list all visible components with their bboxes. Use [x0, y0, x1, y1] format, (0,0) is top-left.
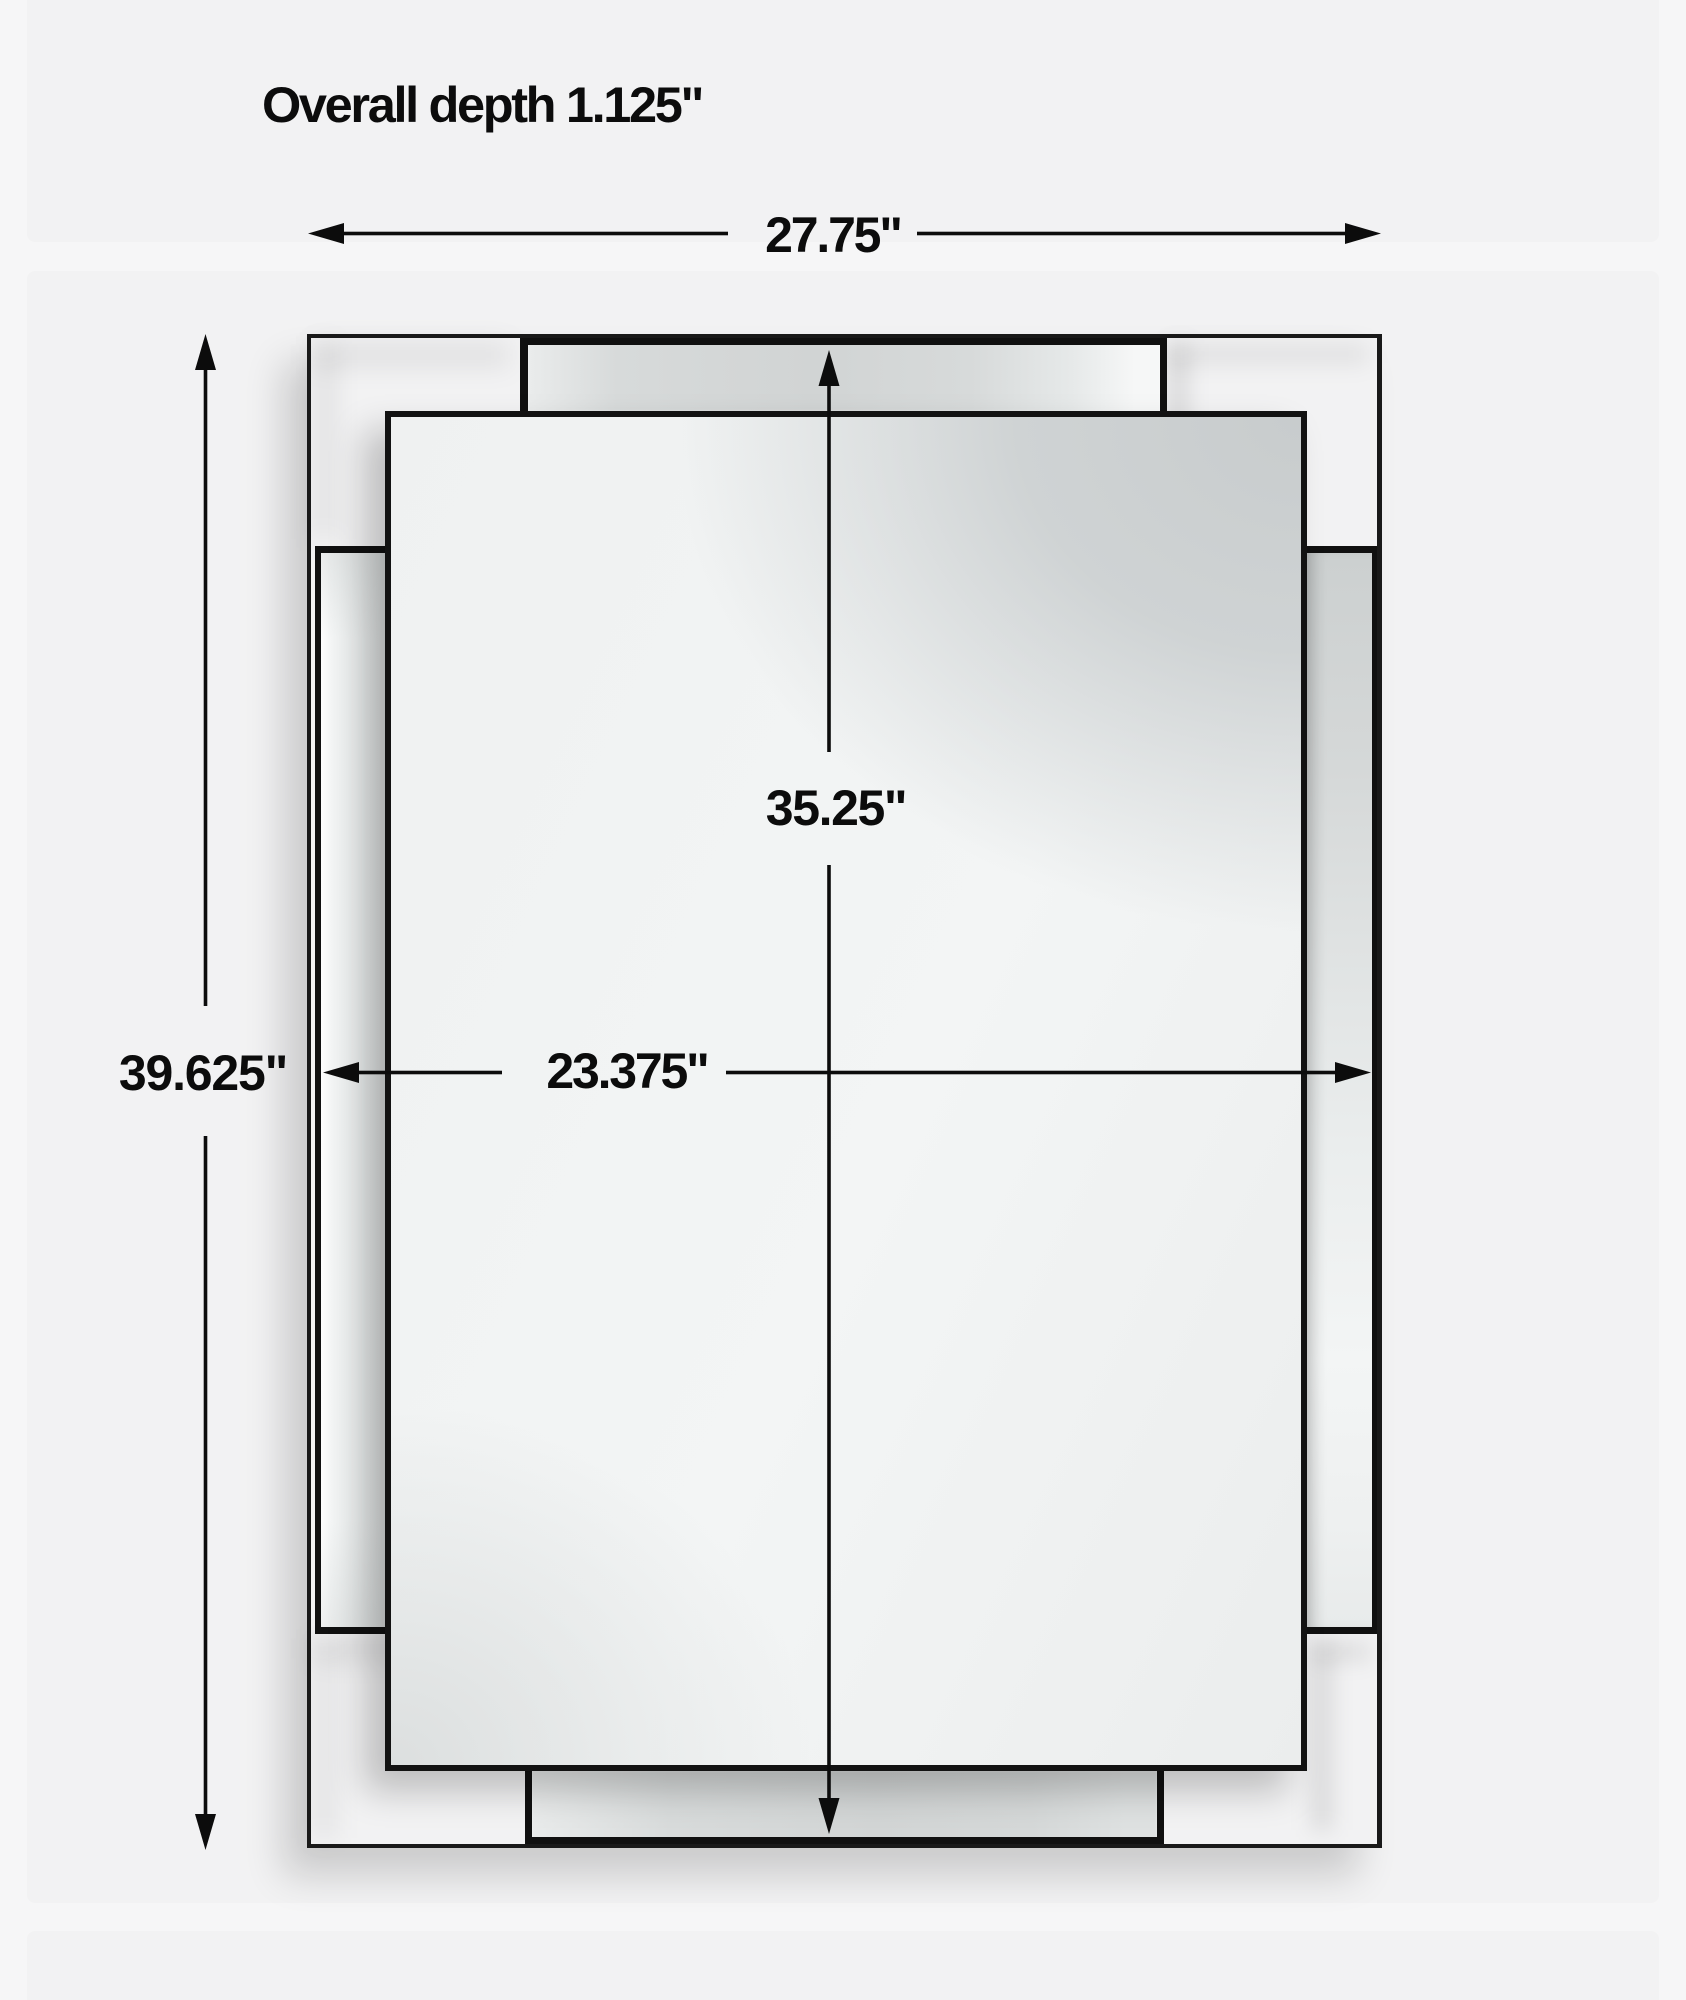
svg-text:39.625": 39.625" [119, 1045, 287, 1101]
svg-text:27.75": 27.75" [765, 207, 901, 263]
svg-text:Overall depth 1.125": Overall depth 1.125" [262, 76, 702, 133]
svg-text:23.375": 23.375" [546, 1043, 707, 1099]
svg-text:35.25": 35.25" [766, 780, 906, 836]
